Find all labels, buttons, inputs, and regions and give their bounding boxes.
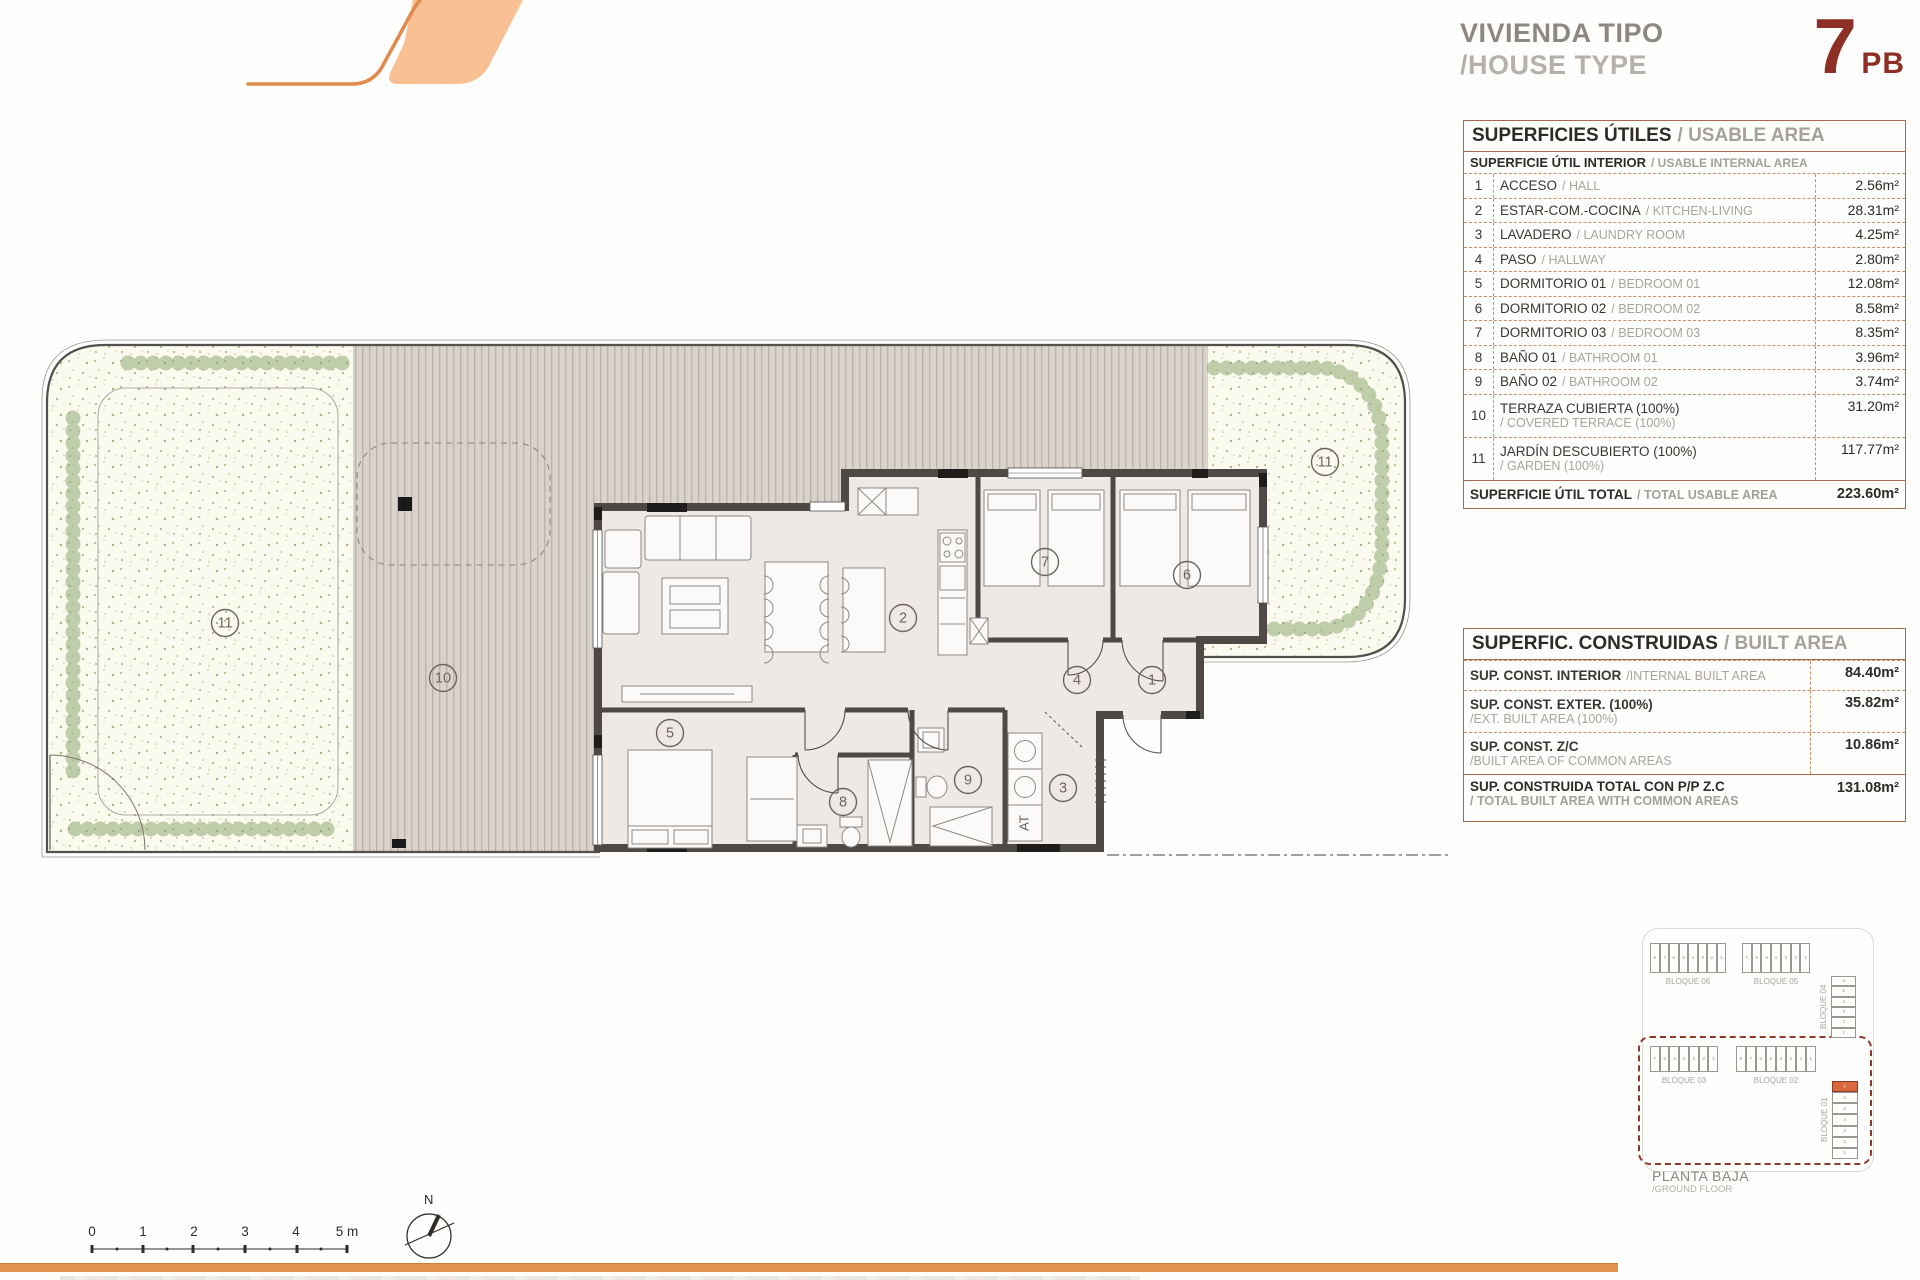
room-area: 8.35m² bbox=[1815, 321, 1905, 345]
toilet-tank bbox=[916, 777, 926, 797]
svg-text:7: 7 bbox=[1041, 555, 1049, 571]
logo-shape bbox=[389, 0, 523, 84]
toilet-tank bbox=[840, 817, 862, 827]
room-area: 117.77m² bbox=[1815, 438, 1905, 480]
row-number: 2 bbox=[1464, 199, 1494, 223]
room-area: 8.58m² bbox=[1815, 297, 1905, 321]
usable-title-en: / USABLE AREA bbox=[1678, 125, 1825, 147]
built-name: SUP. CONST. Z/C/BUILT AREA OF COMMON ARE… bbox=[1464, 733, 1810, 774]
toilet bbox=[927, 776, 947, 798]
minimap-block-bloque-04: 654321 bbox=[1831, 976, 1856, 1038]
room-name: DORMITORIO 03/ BEDROOM 03 bbox=[1494, 321, 1815, 345]
row-number: 8 bbox=[1464, 346, 1494, 370]
svg-text:2: 2 bbox=[899, 611, 907, 627]
built-name: SUP. CONST. EXTER. (100%)/EXT. BUILT ARE… bbox=[1464, 691, 1810, 732]
row-number: 10 bbox=[1464, 395, 1494, 437]
room-area: 2.80m² bbox=[1815, 248, 1905, 272]
row-number: 6 bbox=[1464, 297, 1494, 321]
built-title-es: SUPERFIC. CONSTRUIDAS bbox=[1472, 633, 1718, 655]
built-total-value: 131.08m² bbox=[1810, 775, 1905, 821]
scale-bar: 012345 m bbox=[85, 1224, 385, 1258]
minimap-unit: 7 bbox=[1742, 943, 1752, 973]
usable-area-row: 3 LAVADERO/ LAUNDRY ROOM 4.25m² bbox=[1464, 222, 1905, 247]
minimap-unit: 1 bbox=[1717, 943, 1727, 973]
minimap-caption: PLANTA BAJA bbox=[1652, 1168, 1749, 1184]
minimap-block-label: BLOQUE 04 bbox=[1819, 976, 1828, 1038]
minimap-unit: 7 bbox=[1746, 1046, 1756, 1072]
minimap-unit: 7 bbox=[1650, 1046, 1660, 1072]
usable-area-total-row: SUPERFICIE ÚTIL TOTAL / TOTAL USABLE ARE… bbox=[1464, 480, 1905, 508]
built-area-table: SUPERFIC. CONSTRUIDAS / BUILT AREA SUP. … bbox=[1463, 628, 1906, 822]
usable-total-label-en: / TOTAL USABLE AREA bbox=[1637, 488, 1778, 502]
minimap-unit: 4 bbox=[1679, 1046, 1689, 1072]
built-area-value: 35.82m² bbox=[1810, 691, 1905, 732]
minimap-unit: 3 bbox=[1786, 1046, 1796, 1072]
usable-total-value: 223.60m² bbox=[1813, 486, 1905, 502]
room-area: 3.74m² bbox=[1815, 370, 1905, 394]
minimap-unit: 3 bbox=[1781, 943, 1791, 973]
room-area: 2.56m² bbox=[1815, 174, 1905, 198]
minimap-block-label: BLOQUE 03 bbox=[1650, 1076, 1718, 1085]
minimap-unit: 6 bbox=[1669, 943, 1679, 973]
north-arrow: N bbox=[398, 1192, 462, 1268]
minimap-unit: 4 bbox=[1831, 997, 1856, 1007]
svg-text:6: 6 bbox=[1183, 568, 1191, 584]
usable-area-row: 10 TERRAZA CUBIERTA (100%)/ COVERED TERR… bbox=[1464, 394, 1905, 437]
minimap-unit: 3 bbox=[1831, 1007, 1856, 1017]
usable-area-row: 6 DORMITORIO 02/ BEDROOM 02 8.58m² bbox=[1464, 296, 1905, 321]
usable-total-label-es: SUPERFICIE ÚTIL TOTAL bbox=[1470, 487, 1632, 502]
minimap-unit: 1 bbox=[1800, 943, 1810, 973]
usable-title-es: SUPERFICIES ÚTILES bbox=[1472, 125, 1672, 147]
room-name: LAVADERO/ LAUNDRY ROOM bbox=[1494, 223, 1815, 247]
minimap-block-bloque-01: 7654321 bbox=[1832, 1081, 1858, 1159]
minimap-unit: 1 bbox=[1806, 1046, 1816, 1072]
room-area: 12.08m² bbox=[1815, 272, 1905, 296]
usable-area-row: 4 PASO/ HALLWAY 2.80m² bbox=[1464, 247, 1905, 272]
built-area-table-header: SUPERFIC. CONSTRUIDAS / BUILT AREA bbox=[1464, 629, 1905, 660]
svg-text:4: 4 bbox=[1073, 673, 1081, 689]
svg-text:11: 11 bbox=[217, 616, 232, 632]
garden-left-stipple bbox=[47, 345, 353, 852]
minimap-unit: 5 bbox=[1832, 1103, 1858, 1114]
room-name: ACCESO/ HALL bbox=[1494, 174, 1815, 198]
minimap-unit: 1 bbox=[1831, 1028, 1856, 1038]
minimap-block-bloque-03: 7654321 bbox=[1650, 1046, 1718, 1072]
usable-area-row: 11 JARDÍN DESCUBIERTO (100%)/ GARDEN (10… bbox=[1464, 437, 1905, 480]
row-number: 1 bbox=[1464, 174, 1494, 198]
minimap-unit: 1 bbox=[1708, 1046, 1718, 1072]
room-name: BAÑO 01/ BATHROOM 01 bbox=[1494, 346, 1815, 370]
at-label: AT bbox=[1016, 815, 1031, 831]
dryer bbox=[1008, 769, 1042, 805]
room-name: PASO/ HALLWAY bbox=[1494, 248, 1815, 272]
armchair bbox=[605, 530, 641, 568]
shower bbox=[930, 807, 992, 846]
minimap-unit: 6 bbox=[1660, 1046, 1670, 1072]
entrance-door-gap bbox=[1123, 710, 1161, 720]
usable-area-row: 7 DORMITORIO 03/ BEDROOM 03 8.35m² bbox=[1464, 320, 1905, 345]
minimap-block-label: BLOQUE 06 bbox=[1650, 977, 1726, 986]
built-area-row: SUP. CONST. Z/C/BUILT AREA OF COMMON ARE… bbox=[1464, 732, 1905, 774]
built-title-en: / BUILT AREA bbox=[1724, 633, 1848, 655]
minimap-unit: 4 bbox=[1832, 1114, 1858, 1125]
washer bbox=[1008, 733, 1042, 769]
minimap-unit: 6 bbox=[1831, 976, 1856, 986]
minimap-unit: 1 bbox=[1832, 1148, 1858, 1159]
site-minimap: 87654321BLOQUE 067654321BLOQUE 05654321B… bbox=[1638, 926, 1886, 1206]
built-name: SUP. CONST. INTERIOR/INTERNAL BUILT AREA bbox=[1464, 661, 1810, 690]
row-number: 11 bbox=[1464, 438, 1494, 480]
usable-area-table: SUPERFICIES ÚTILES / USABLE AREA SUPERFI… bbox=[1463, 120, 1906, 509]
minimap-block-bloque-05: 7654321 bbox=[1742, 943, 1810, 973]
plan-sheet: VIVIENDA TIPO /HOUSE TYPE 7 PB SUPERFICI… bbox=[0, 0, 1920, 1280]
footer-accent-band bbox=[0, 1263, 1618, 1272]
minimap-unit: 2 bbox=[1791, 943, 1801, 973]
usable-area-table-subheader: SUPERFICIE ÚTIL INTERIOR / USABLE INTERN… bbox=[1464, 152, 1905, 173]
usable-area-row: 9 BAÑO 02/ BATHROOM 02 3.74m² bbox=[1464, 369, 1905, 394]
sofa bbox=[645, 516, 751, 560]
minimap-unit: 4 bbox=[1776, 1046, 1786, 1072]
usable-area-row: 1 ACCESO/ HALL 2.56m² bbox=[1464, 173, 1905, 198]
pillar bbox=[392, 839, 406, 848]
built-area-value: 84.40m² bbox=[1810, 661, 1905, 690]
built-area-total-row: SUP. CONSTRUIDA TOTAL CON P/P Z.C / TOTA… bbox=[1464, 774, 1905, 821]
usable-area-row: 5 DORMITORIO 01/ BEDROOM 01 12.08m² bbox=[1464, 271, 1905, 296]
minimap-unit: 2 bbox=[1699, 1046, 1709, 1072]
room-name: DORMITORIO 01/ BEDROOM 01 bbox=[1494, 272, 1815, 296]
minimap-unit: 8 bbox=[1650, 943, 1660, 973]
page-title-en: /HOUSE TYPE bbox=[1460, 50, 1647, 81]
usable-subtitle-es: SUPERFICIE ÚTIL INTERIOR bbox=[1470, 155, 1646, 170]
minimap-unit: 7 bbox=[1660, 943, 1670, 973]
row-number: 4 bbox=[1464, 248, 1494, 272]
built-total-label-es: SUP. CONSTRUIDA TOTAL CON P/P Z.C bbox=[1470, 779, 1810, 794]
svg-text:1: 1 bbox=[1148, 673, 1156, 689]
minimap-unit: 3 bbox=[1689, 1046, 1699, 1072]
row-number: 5 bbox=[1464, 272, 1494, 296]
row-number: 3 bbox=[1464, 223, 1494, 247]
minimap-unit: 2 bbox=[1832, 1137, 1858, 1148]
room-name: TERRAZA CUBIERTA (100%)/ COVERED TERRACE… bbox=[1494, 395, 1815, 437]
minimap-block-bloque-02: 87654321 bbox=[1736, 1046, 1816, 1072]
house-type-badge: 7 PB bbox=[1755, 6, 1905, 86]
room-area: 3.96m² bbox=[1815, 346, 1905, 370]
room-name: BAÑO 02/ BATHROOM 02 bbox=[1494, 370, 1815, 394]
built-area-row: SUP. CONST. INTERIOR/INTERNAL BUILT AREA… bbox=[1464, 660, 1905, 690]
scale-bar-line bbox=[85, 1224, 385, 1258]
cropped-footer-strip bbox=[60, 1276, 1140, 1280]
usable-subtitle-en: / USABLE INTERNAL AREA bbox=[1651, 156, 1808, 170]
usable-area-row: 2 ESTAR-COM.-COCINA/ KITCHEN-LIVING 28.3… bbox=[1464, 198, 1905, 223]
pillar bbox=[398, 497, 412, 511]
minimap-block-label: BLOQUE 05 bbox=[1742, 977, 1810, 986]
usable-area-table-header: SUPERFICIES ÚTILES / USABLE AREA bbox=[1464, 121, 1905, 152]
usable-area-row: 8 BAÑO 01/ BATHROOM 01 3.96m² bbox=[1464, 345, 1905, 370]
minimap-unit: 4 bbox=[1688, 943, 1698, 973]
svg-text:10: 10 bbox=[435, 671, 451, 687]
toilet bbox=[842, 827, 860, 847]
kitchen-island bbox=[843, 568, 885, 652]
svg-text:8: 8 bbox=[839, 795, 847, 811]
built-area-value: 10.86m² bbox=[1810, 733, 1905, 774]
room-name: DORMITORIO 02/ BEDROOM 02 bbox=[1494, 297, 1815, 321]
house-type-number: 7 bbox=[1813, 2, 1856, 90]
page-title: VIVIENDA TIPO bbox=[1460, 18, 1664, 49]
storage-box bbox=[858, 488, 918, 515]
svg-text:3: 3 bbox=[1059, 781, 1067, 797]
svg-text:11: 11 bbox=[1317, 455, 1332, 471]
north-arrow-icon bbox=[398, 1192, 462, 1268]
minimap-block-label: BLOQUE 01 bbox=[1820, 1081, 1829, 1159]
minimap-unit: 5 bbox=[1831, 986, 1856, 996]
floor-plan: AT 111025893417611 bbox=[40, 330, 1455, 870]
minimap-caption-en: /GROUND FLOOR bbox=[1652, 1184, 1732, 1195]
sink bbox=[797, 825, 827, 847]
room-name: JARDÍN DESCUBIERTO (100%)/ GARDEN (100%) bbox=[1494, 438, 1815, 480]
minimap-unit: 6 bbox=[1832, 1092, 1858, 1103]
minimap-unit: 5 bbox=[1669, 1046, 1679, 1072]
room-area: 31.20m² bbox=[1815, 395, 1905, 437]
svg-text:9: 9 bbox=[964, 773, 972, 789]
built-area-rows: SUP. CONST. INTERIOR/INTERNAL BUILT AREA… bbox=[1464, 660, 1905, 774]
room-area: 4.25m² bbox=[1815, 223, 1905, 247]
minimap-unit: 6 bbox=[1756, 1046, 1766, 1072]
built-total-label-en: / TOTAL BUILT AREA WITH COMMON AREAS bbox=[1470, 794, 1810, 808]
minimap-unit: 8 bbox=[1736, 1046, 1746, 1072]
minimap-unit: 5 bbox=[1766, 1046, 1776, 1072]
usable-area-rows: 1 ACCESO/ HALL 2.56m²2 ESTAR-COM.-COCINA… bbox=[1464, 173, 1905, 480]
minimap-block-bloque-06: 87654321 bbox=[1650, 943, 1726, 973]
minimap-unit: 5 bbox=[1761, 943, 1771, 973]
house-type-code: PB bbox=[1861, 47, 1905, 80]
minimap-unit: 2 bbox=[1831, 1017, 1856, 1027]
svg-text:5: 5 bbox=[666, 726, 674, 742]
minimap-unit: 2 bbox=[1796, 1046, 1806, 1072]
dining-table bbox=[765, 562, 828, 652]
minimap-unit: 6 bbox=[1752, 943, 1762, 973]
kitchen-sink bbox=[940, 566, 965, 590]
minimap-block-label: BLOQUE 02 bbox=[1736, 1076, 1816, 1085]
room-area: 28.31m² bbox=[1815, 199, 1905, 223]
minimap-unit: 5 bbox=[1679, 943, 1689, 973]
minimap-unit: 3 bbox=[1832, 1126, 1858, 1137]
minimap-unit: 3 bbox=[1698, 943, 1708, 973]
minimap-unit-highlighted: 7 bbox=[1832, 1081, 1858, 1092]
row-number: 7 bbox=[1464, 321, 1494, 345]
shower bbox=[868, 760, 912, 846]
built-area-row: SUP. CONST. EXTER. (100%)/EXT. BUILT ARE… bbox=[1464, 690, 1905, 732]
row-number: 9 bbox=[1464, 370, 1494, 394]
room-name: ESTAR-COM.-COCINA/ KITCHEN-LIVING bbox=[1494, 199, 1815, 223]
minimap-unit: 2 bbox=[1707, 943, 1717, 973]
brand-logo bbox=[195, 0, 540, 92]
minimap-unit: 4 bbox=[1771, 943, 1781, 973]
side-sofa bbox=[603, 572, 639, 634]
